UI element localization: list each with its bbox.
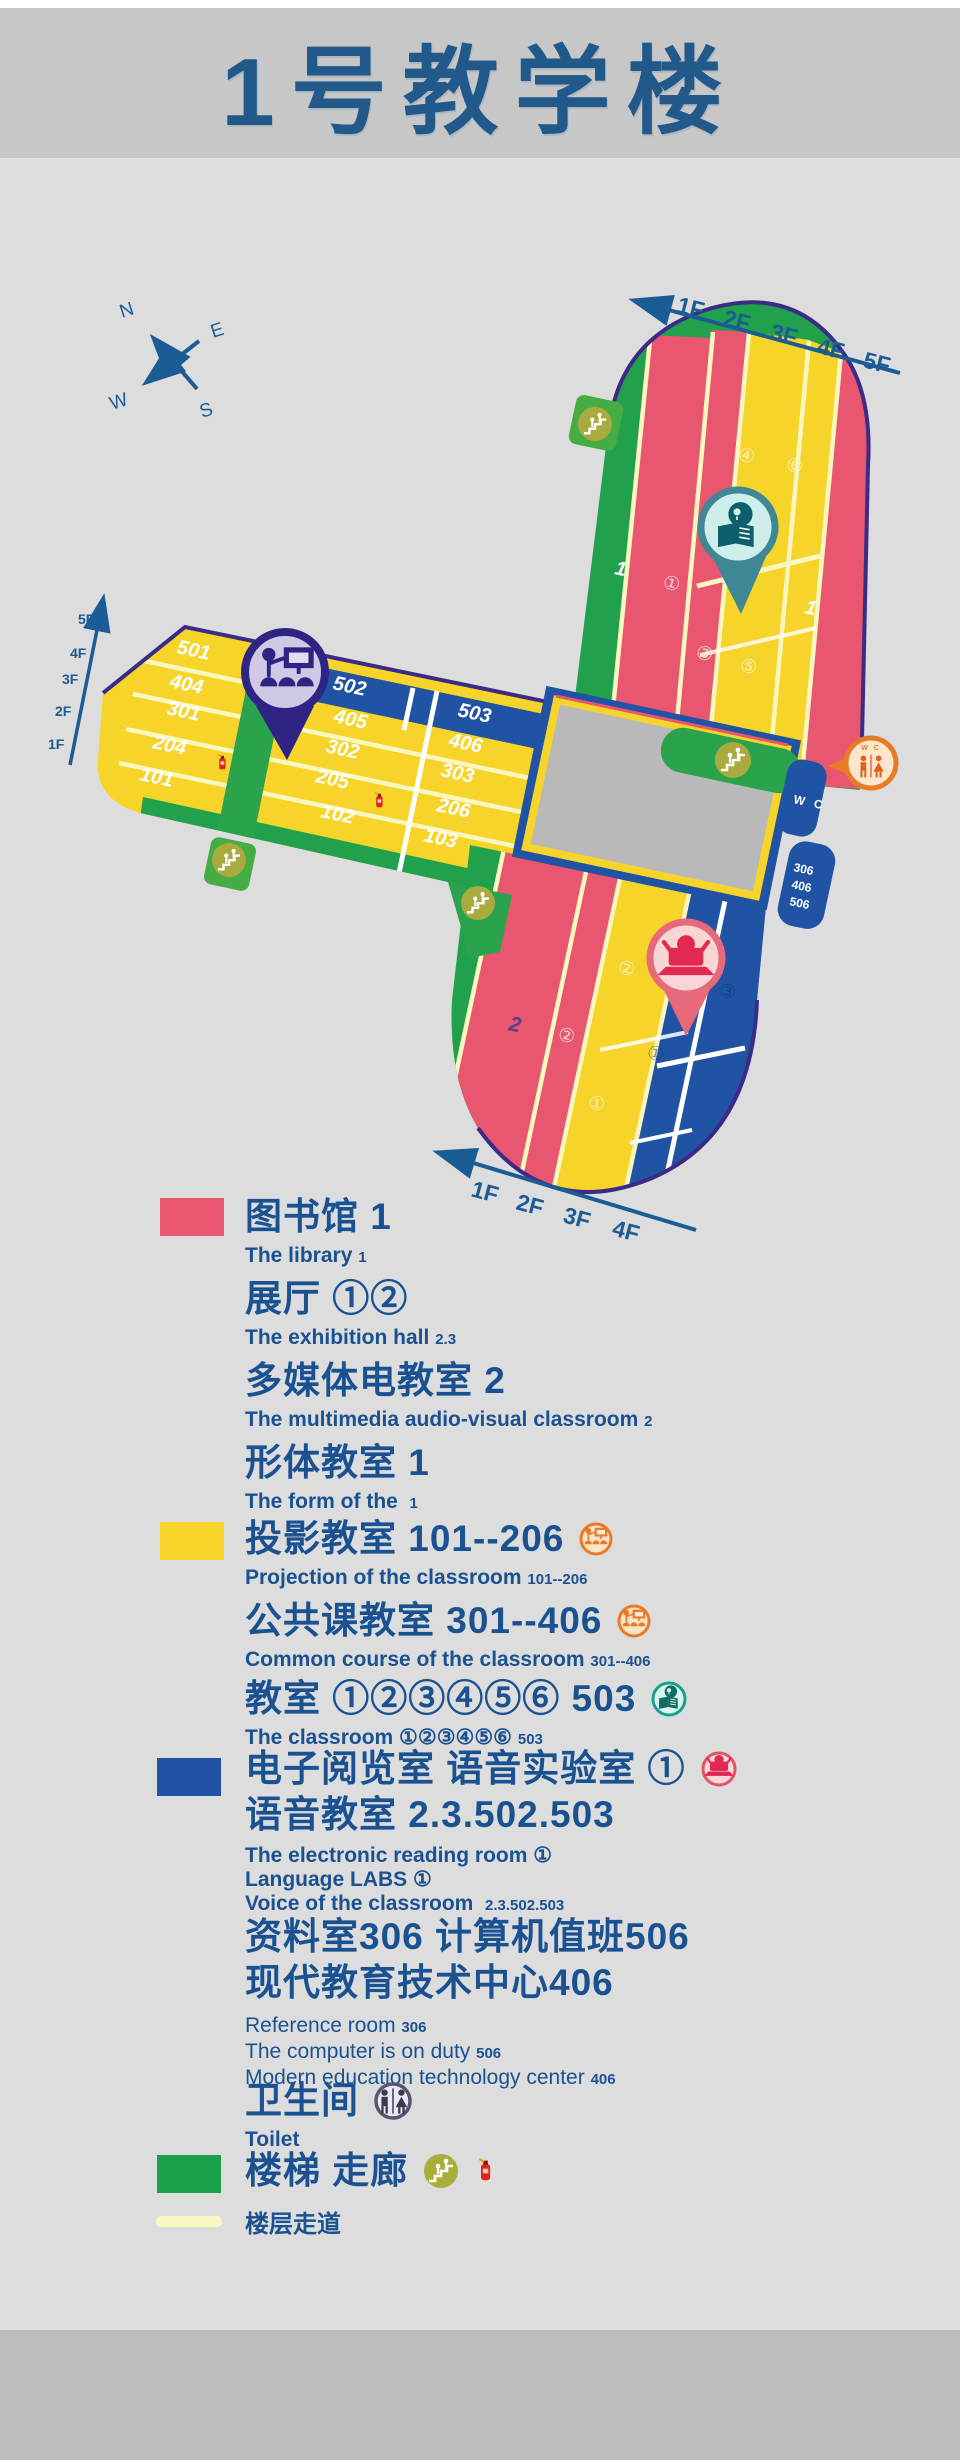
legend-subnum: 2 [644,1413,652,1430]
legend: 图书馆 1 The library 1 展厅 ①② The exhibition… [0,0,960,2330]
legend-sub: The multimedia audio-visual classroom [245,1408,638,1431]
legend-subnum: 101--206 [527,1571,587,1588]
legend-subnum: 306 [401,2019,426,2036]
legend-sub: The classroom ①②③④⑤⑥ [245,1726,512,1749]
legend-sub: The form of the [245,1490,398,1513]
legend-title: 楼梯 走廊 [245,2150,408,2192]
legend-sub: Common course of the classroom [245,1648,585,1671]
corridor-swatch [157,2155,221,2193]
legend-subnum: 1 [410,1495,418,1512]
legend-title: 投影教室 101--206 [245,1518,564,1560]
legend-title: 展厅 ①② [245,1278,456,1320]
legend-sub: The computer is on duty [245,2040,470,2063]
stairs-green-icon [422,2152,460,2190]
legend-subnum: 301--406 [590,1653,650,1670]
legend-sub: Voice of the classroom [245,1892,473,1915]
legend-subnum: 506 [476,2045,501,2062]
fire-extinguisher-icon [474,2154,496,2188]
floor-path-swatch [156,2216,222,2227]
sign-footer [0,2330,960,2460]
legend-title: 形体教室 1 [245,1442,430,1484]
stairs-orange-icon [616,1603,652,1639]
legend-title: 资料室306 计算机值班506 [245,1916,690,1958]
legend-sub: The library [245,1244,352,1267]
legend-sub: Projection of the classroom [245,1566,522,1589]
book-teal-icon [650,1680,688,1718]
legend-title: 卫生间 [245,2080,359,2122]
legend-subnum: 1 [358,1249,366,1266]
legend-title: 公共课教室 301--406 [245,1600,602,1642]
legend-title2: 语音教室 2.3.502.503 [245,1794,738,1836]
legend-sub: Reference room [245,2014,396,2037]
legend-subnum: 503 [518,1731,543,1748]
legend-sub: The electronic reading room ① [245,1844,738,1868]
projection-swatch [160,1522,224,1560]
library-swatch [160,1198,224,1236]
legend-subnum: 406 [591,2071,616,2088]
laptop-red-icon [700,1750,738,1788]
stairs-orange-icon [578,1521,614,1557]
legend-title2: 现代教育技术中心406 [245,1962,690,2004]
legend-subnum: 2.3 [435,1331,456,1348]
legend-title: 楼层走道 [245,2204,341,2239]
legend-title: 图书馆 1 [245,1196,392,1238]
legend-title: 多媒体电教室 2 [245,1360,652,1402]
lab-swatch [157,1758,221,1796]
legend-sub: Language LABS ① [245,1868,738,1892]
legend-title: 教室 ①②③④⑤⑥ 503 [245,1678,636,1720]
legend-sub: The exhibition hall [245,1326,429,1349]
building-sign-page: 1号教学楼 [0,0,960,2460]
legend-sub: Toilet [245,2128,413,2152]
toilet-icon [373,2081,413,2121]
legend-title: 电子阅览室 语音实验室 ① [245,1748,686,1790]
legend-subnum: 2.3.502.503 [485,1897,564,1914]
